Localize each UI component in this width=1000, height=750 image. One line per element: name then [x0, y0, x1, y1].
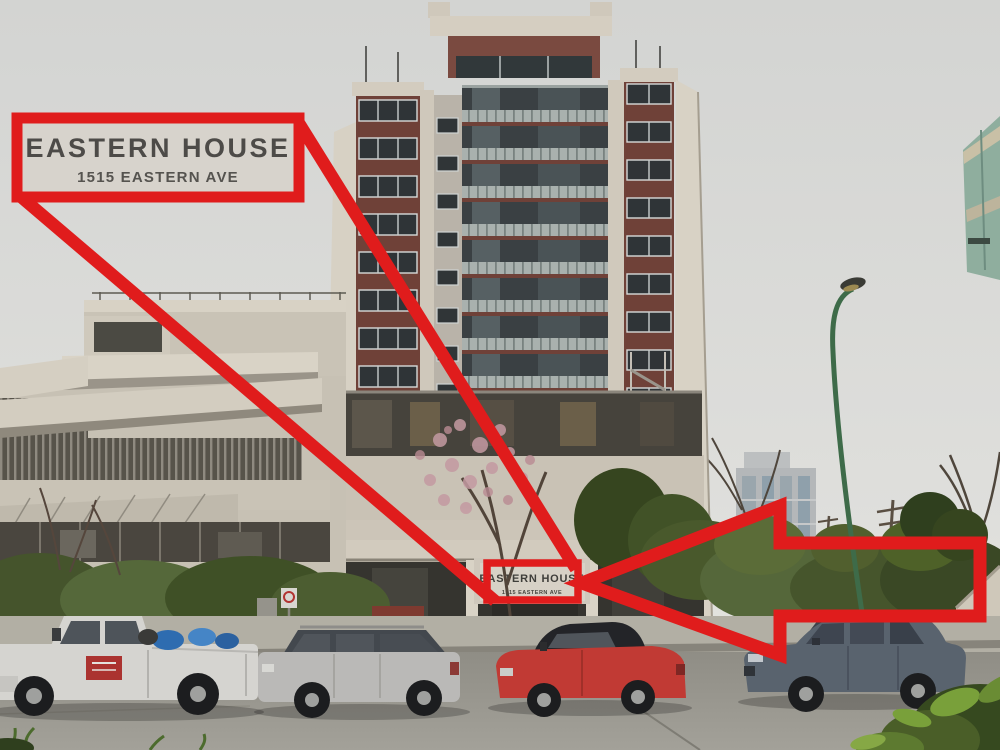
building-sign-subtitle: 1515 EASTERN AVE: [502, 590, 562, 596]
annotated-photo: EASTERN HOUSE 1515 EASTERN AVE: [0, 0, 1000, 750]
callout-subtitle: 1515 EASTERN AVE: [77, 169, 239, 186]
tower-top-slab: [428, 2, 450, 18]
truck-door-decal: [86, 656, 122, 680]
callout-title: EASTERN HOUSE: [25, 133, 290, 163]
